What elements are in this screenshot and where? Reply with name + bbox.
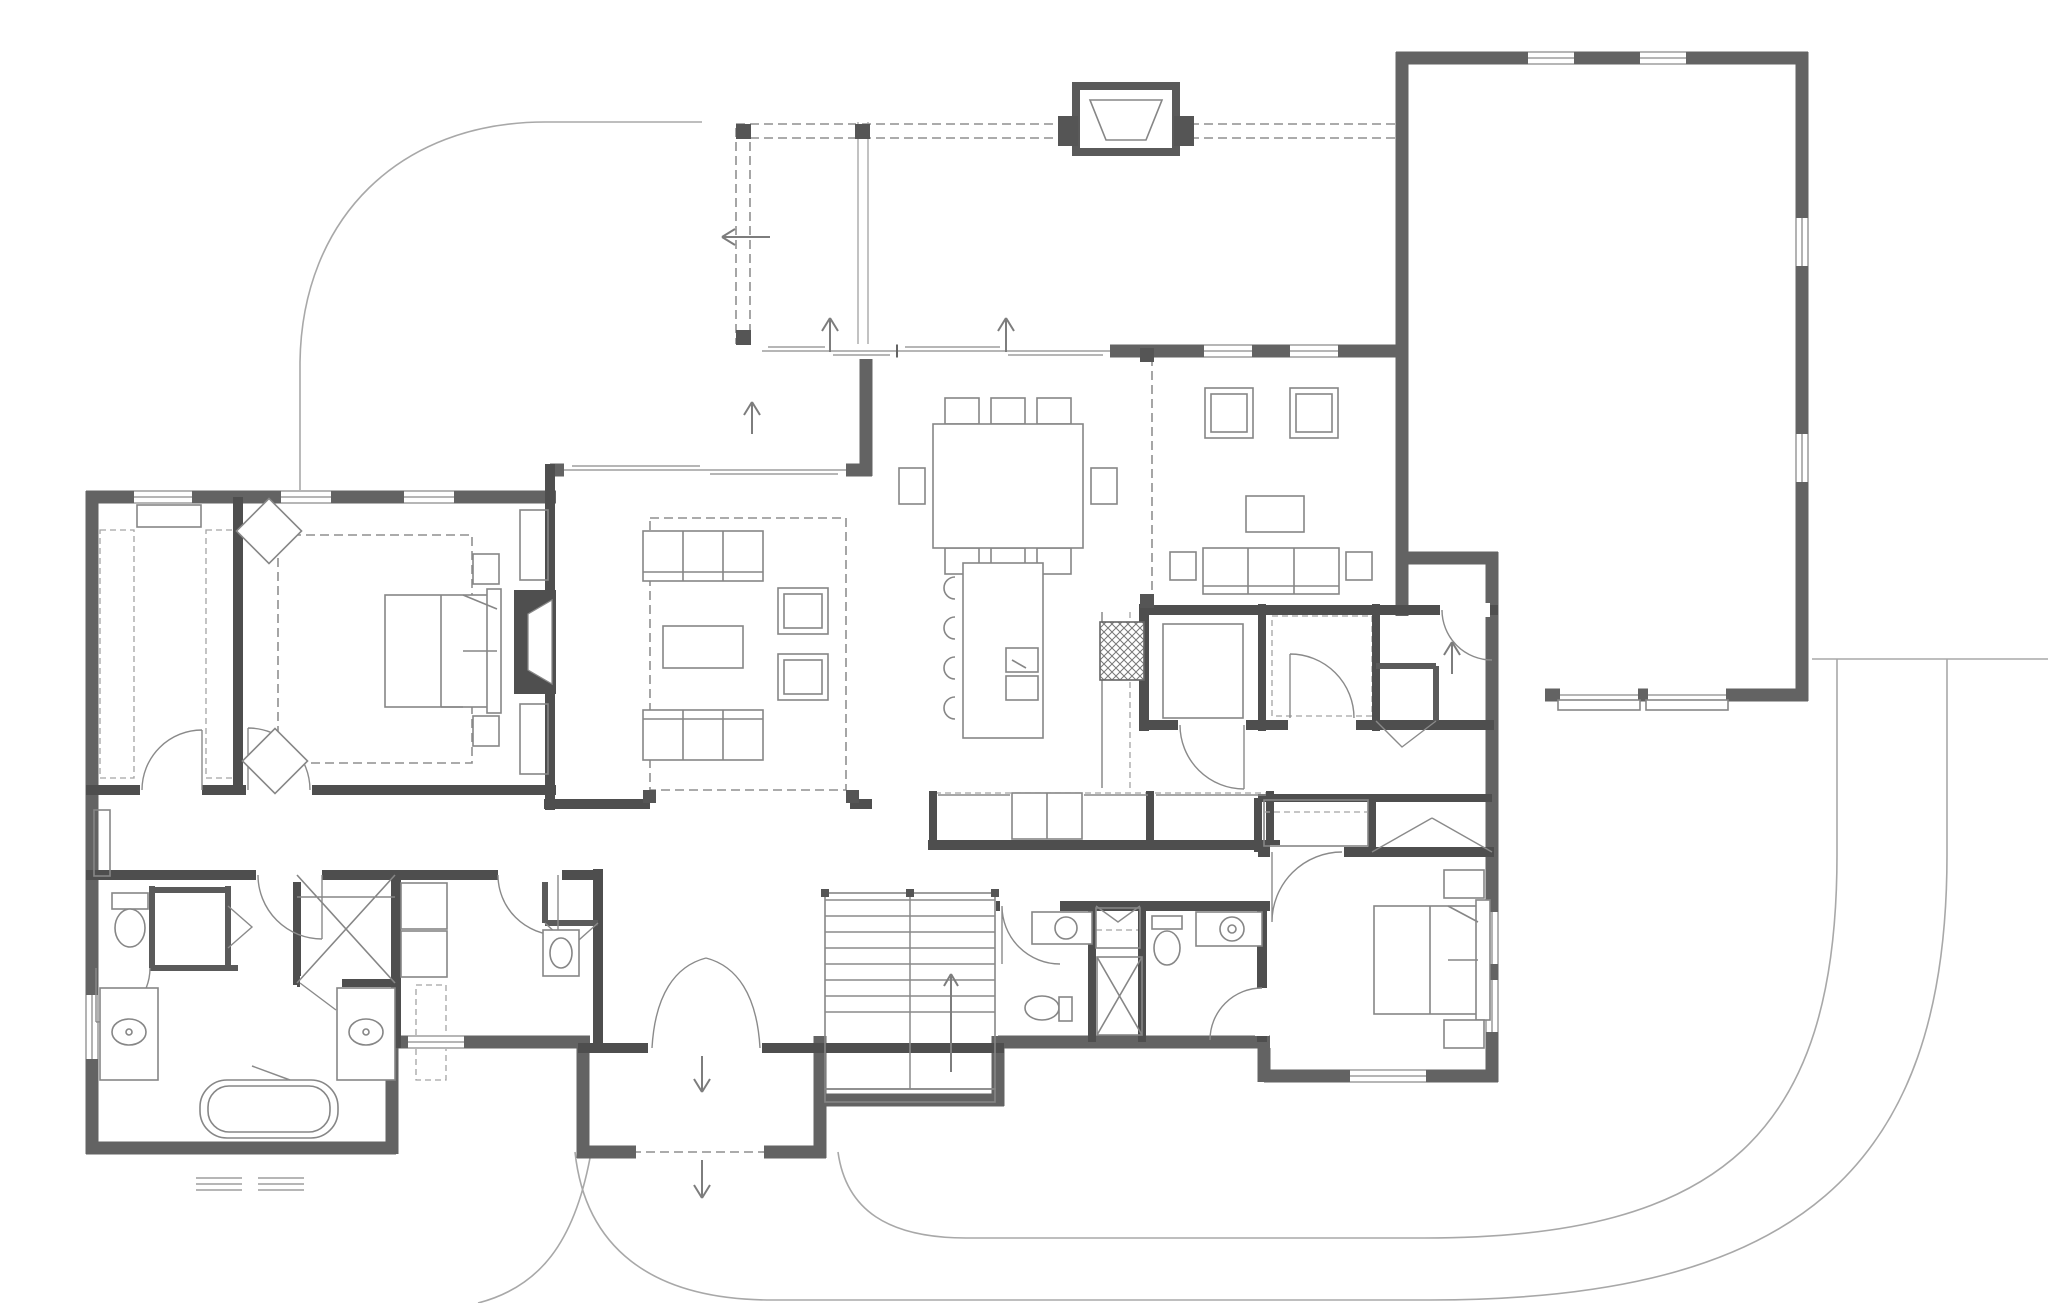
guest-bed (1374, 870, 1490, 1048)
coats-closet (1096, 908, 1140, 948)
primary-bath-fixtures (100, 875, 395, 1138)
pwdr-fixtures (1025, 912, 1092, 1021)
bench-cubbies-unit (1264, 800, 1368, 846)
porch-fireplace (1058, 86, 1194, 152)
great-room-furniture (643, 531, 828, 760)
floor-plan-drawing (0, 0, 2048, 1303)
laundry-fixtures (401, 883, 579, 977)
floor-plan-page (0, 0, 2048, 1303)
dashed-overheads (100, 122, 1396, 1152)
dining-table (899, 398, 1117, 574)
site-lines (300, 122, 2048, 1303)
stairs (821, 889, 999, 1102)
shoes-shelf (137, 505, 201, 527)
kitchen-island (944, 563, 1043, 738)
pantry-shelves (1163, 624, 1243, 718)
den-furniture (1170, 388, 1372, 594)
primary-bed (236, 498, 501, 793)
fireplaces (514, 86, 1194, 774)
